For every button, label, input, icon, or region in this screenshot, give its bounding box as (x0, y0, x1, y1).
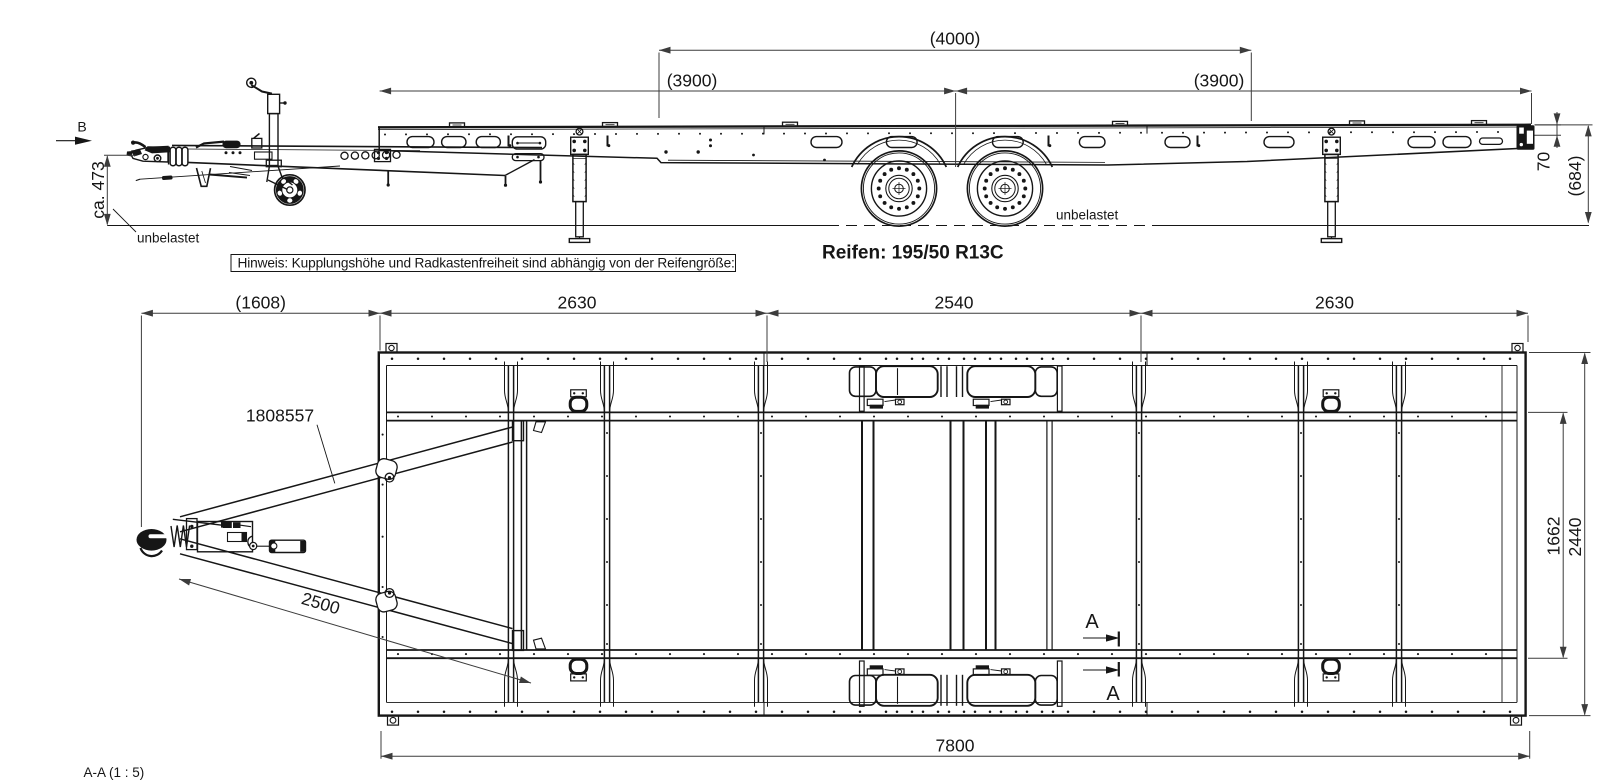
svg-text:Hinweis: Kupplungshöhe und Rad: Hinweis: Kupplungshöhe und Radkastenfrei… (238, 255, 735, 270)
svg-text:A: A (1106, 683, 1120, 705)
svg-text:(4000): (4000) (930, 29, 981, 49)
svg-text:(3900): (3900) (1194, 71, 1245, 91)
svg-text:B: B (77, 119, 86, 135)
svg-text:2440: 2440 (1565, 517, 1585, 556)
svg-text:unbelastet: unbelastet (1056, 208, 1119, 223)
svg-text:(3900): (3900) (667, 71, 718, 91)
svg-text:ca. 473: ca. 473 (88, 161, 108, 218)
svg-text:2630: 2630 (1315, 293, 1354, 313)
svg-text:2630: 2630 (558, 293, 597, 313)
svg-text:A: A (1085, 611, 1099, 633)
svg-text:(1608): (1608) (235, 293, 286, 313)
svg-text:unbelastet: unbelastet (137, 231, 200, 246)
svg-text:70: 70 (1534, 152, 1554, 172)
svg-text:(684): (684) (1565, 156, 1585, 197)
svg-text:1662: 1662 (1544, 517, 1564, 556)
svg-text:Reifen: 195/50 R13C: Reifen: 195/50 R13C (822, 243, 1004, 264)
svg-text:2540: 2540 (935, 293, 974, 313)
svg-text:7800: 7800 (936, 736, 975, 756)
svg-text:1808557: 1808557 (246, 406, 314, 426)
svg-text:2500: 2500 (299, 588, 342, 618)
svg-text:A-A (1 : 5): A-A (1 : 5) (84, 765, 145, 780)
